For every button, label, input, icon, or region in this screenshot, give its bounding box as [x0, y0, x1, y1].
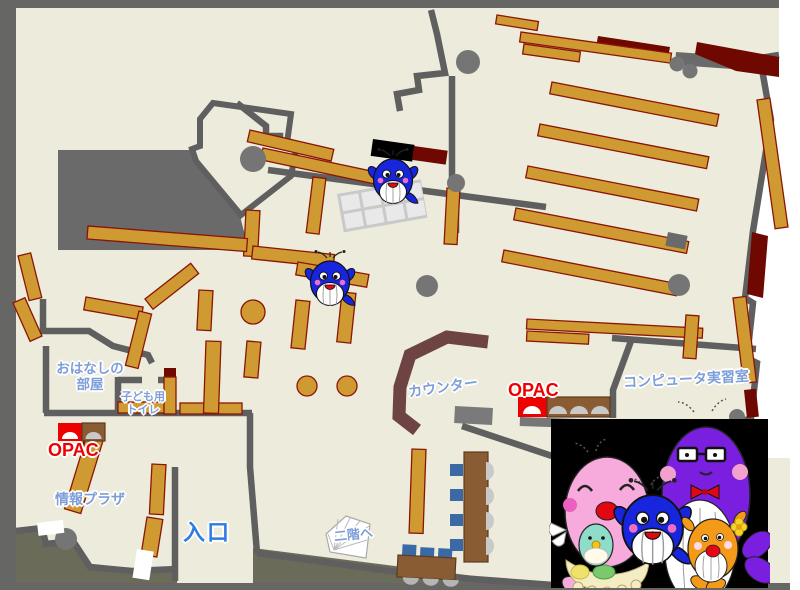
opac-terminal-left: [58, 423, 105, 441]
round-table: [297, 376, 317, 396]
label-info-plaza: 情報プラザ: [55, 491, 125, 507]
round-table: [241, 300, 265, 324]
label-storytelling-room: おはなしの 部屋: [46, 361, 134, 392]
label-kids-toilet: 子ども用 トイレ: [114, 391, 172, 416]
label-opac-left: OPAC: [48, 440, 99, 461]
map-frame-top: [0, 0, 779, 8]
map-frame-left: [0, 0, 16, 590]
label-kids-toilet-line1: 子ども用: [114, 391, 172, 404]
library-floor-map: おはなしの 部屋 子ども用 トイレ OPAC 情報プラザ 入口 カウンター OP…: [0, 0, 800, 590]
baby-whale-icon: [579, 524, 613, 566]
round-table: [337, 376, 357, 396]
label-storytelling-room-line2: 部屋: [46, 377, 134, 393]
label-kids-toilet-line2: トイレ: [114, 404, 172, 417]
label-storytelling-room-line1: おはなしの: [46, 361, 134, 377]
reading-table: [396, 544, 460, 587]
label-opac-right: OPAC: [508, 380, 559, 401]
label-entrance: 入口: [183, 520, 231, 545]
counter-desk: [454, 406, 493, 425]
